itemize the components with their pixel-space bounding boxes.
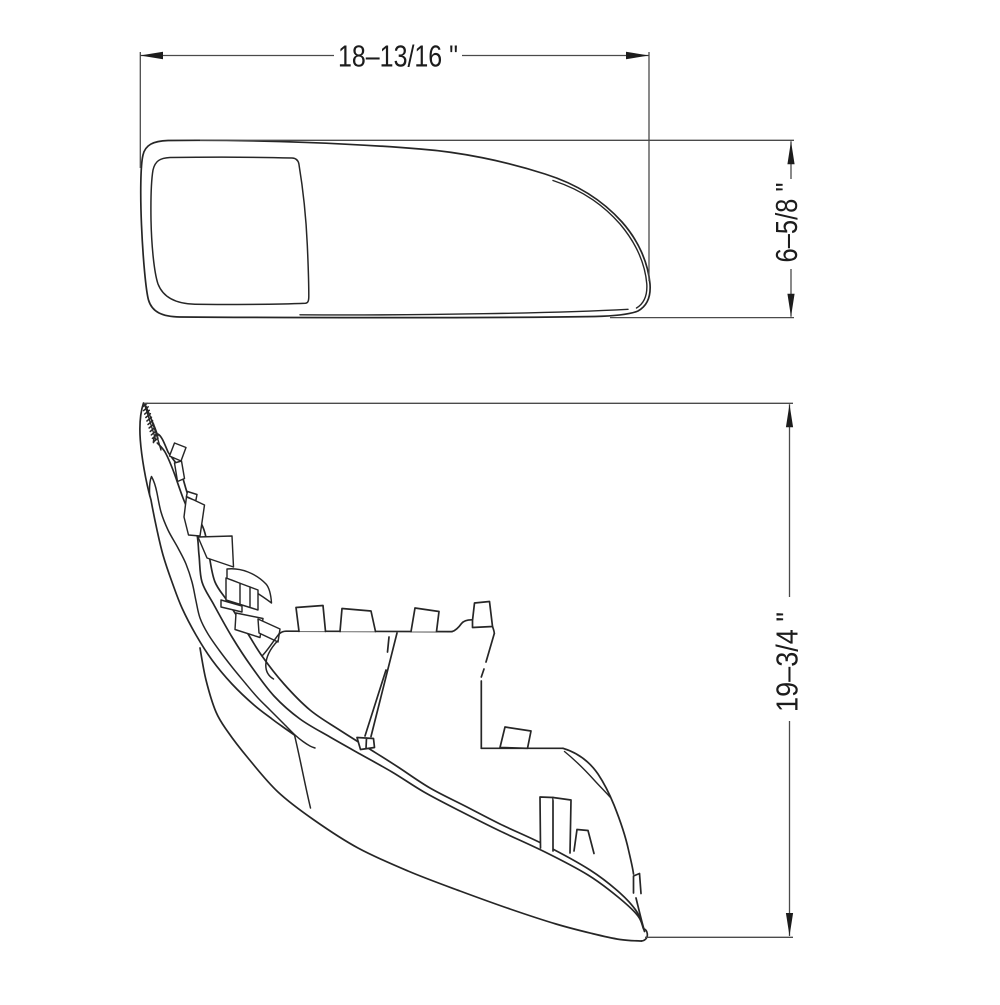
svg-text:18–13/16 ": 18–13/16 " bbox=[338, 39, 458, 74]
svg-text:6–5/8 ": 6–5/8 " bbox=[769, 183, 804, 263]
svg-text:19–3/4 ": 19–3/4 " bbox=[770, 612, 805, 712]
